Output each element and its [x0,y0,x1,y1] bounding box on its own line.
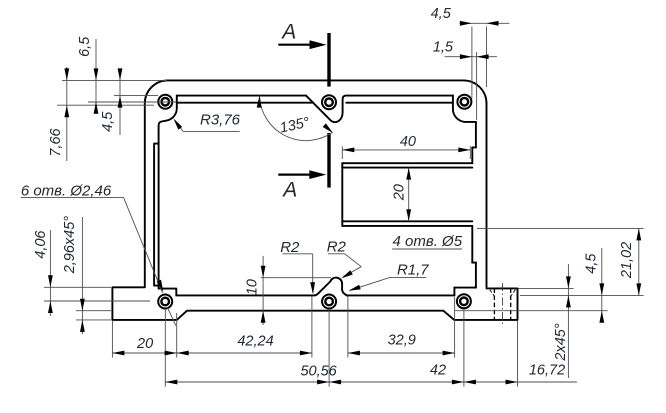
svg-text:2x45°: 2x45° [553,323,569,361]
svg-text:20: 20 [136,336,153,352]
svg-text:4,06: 4,06 [33,230,49,259]
svg-text:42: 42 [430,363,446,379]
svg-text:4 отв. Ø5: 4 отв. Ø5 [393,233,463,250]
svg-text:4,5: 4,5 [100,111,116,132]
svg-text:50,56: 50,56 [300,364,337,380]
svg-text:32,9: 32,9 [388,333,416,349]
svg-text:4,5: 4,5 [584,253,600,274]
svg-text:6,5: 6,5 [77,36,93,57]
svg-text:4,5: 4,5 [431,6,452,22]
svg-text:R3,76: R3,76 [200,112,241,129]
svg-text:A: A [280,21,296,44]
svg-text:6 отв. Ø2,46: 6 отв. Ø2,46 [21,183,112,200]
svg-text:R2: R2 [327,239,347,256]
svg-text:A: A [281,179,297,202]
svg-text:42,24: 42,24 [237,334,273,350]
svg-text:16,72: 16,72 [529,363,565,379]
svg-text:40: 40 [400,134,416,150]
svg-text:21,02: 21,02 [619,242,635,279]
svg-text:R1,7: R1,7 [397,262,429,279]
svg-text:1,5: 1,5 [433,40,454,56]
svg-text:2,96x45°: 2,96x45° [62,216,78,275]
svg-text:7,66: 7,66 [48,127,64,156]
svg-text:20: 20 [392,184,408,201]
svg-text:10: 10 [245,279,261,295]
